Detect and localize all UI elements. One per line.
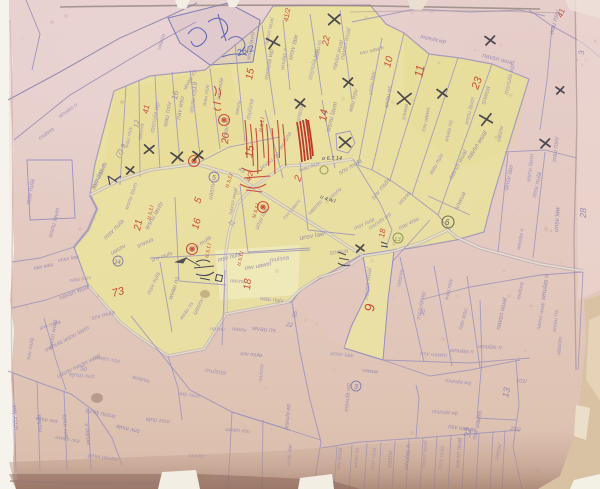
svg-text:101/: 101/ — [516, 378, 528, 385]
svg-text:12: 12 — [133, 119, 141, 128]
svg-text:3: 3 — [354, 384, 358, 391]
svg-text:9: 9 — [361, 303, 378, 312]
svg-text:20: 20 — [220, 132, 232, 145]
svg-text:19: 19 — [191, 81, 199, 90]
svg-text:uasnv: uasnv — [210, 326, 226, 333]
svg-text:5: 5 — [212, 175, 216, 182]
svg-text:14: 14 — [317, 108, 331, 122]
svg-text:32: 32 — [462, 427, 474, 439]
svg-text:13: 13 — [500, 387, 512, 399]
svg-text:18: 18 — [242, 278, 254, 290]
svg-text:6: 6 — [445, 218, 450, 227]
svg-text:41: 41 — [141, 104, 151, 114]
svg-text:wnulas n: wnulas n — [478, 344, 503, 351]
svg-text:22: 22 — [320, 35, 332, 48]
svg-text:13: 13 — [394, 237, 401, 243]
svg-text:24: 24 — [113, 260, 121, 266]
svg-text:28: 28 — [578, 208, 588, 219]
svg-text:o 6.7.14: o 6.7.14 — [322, 156, 342, 162]
